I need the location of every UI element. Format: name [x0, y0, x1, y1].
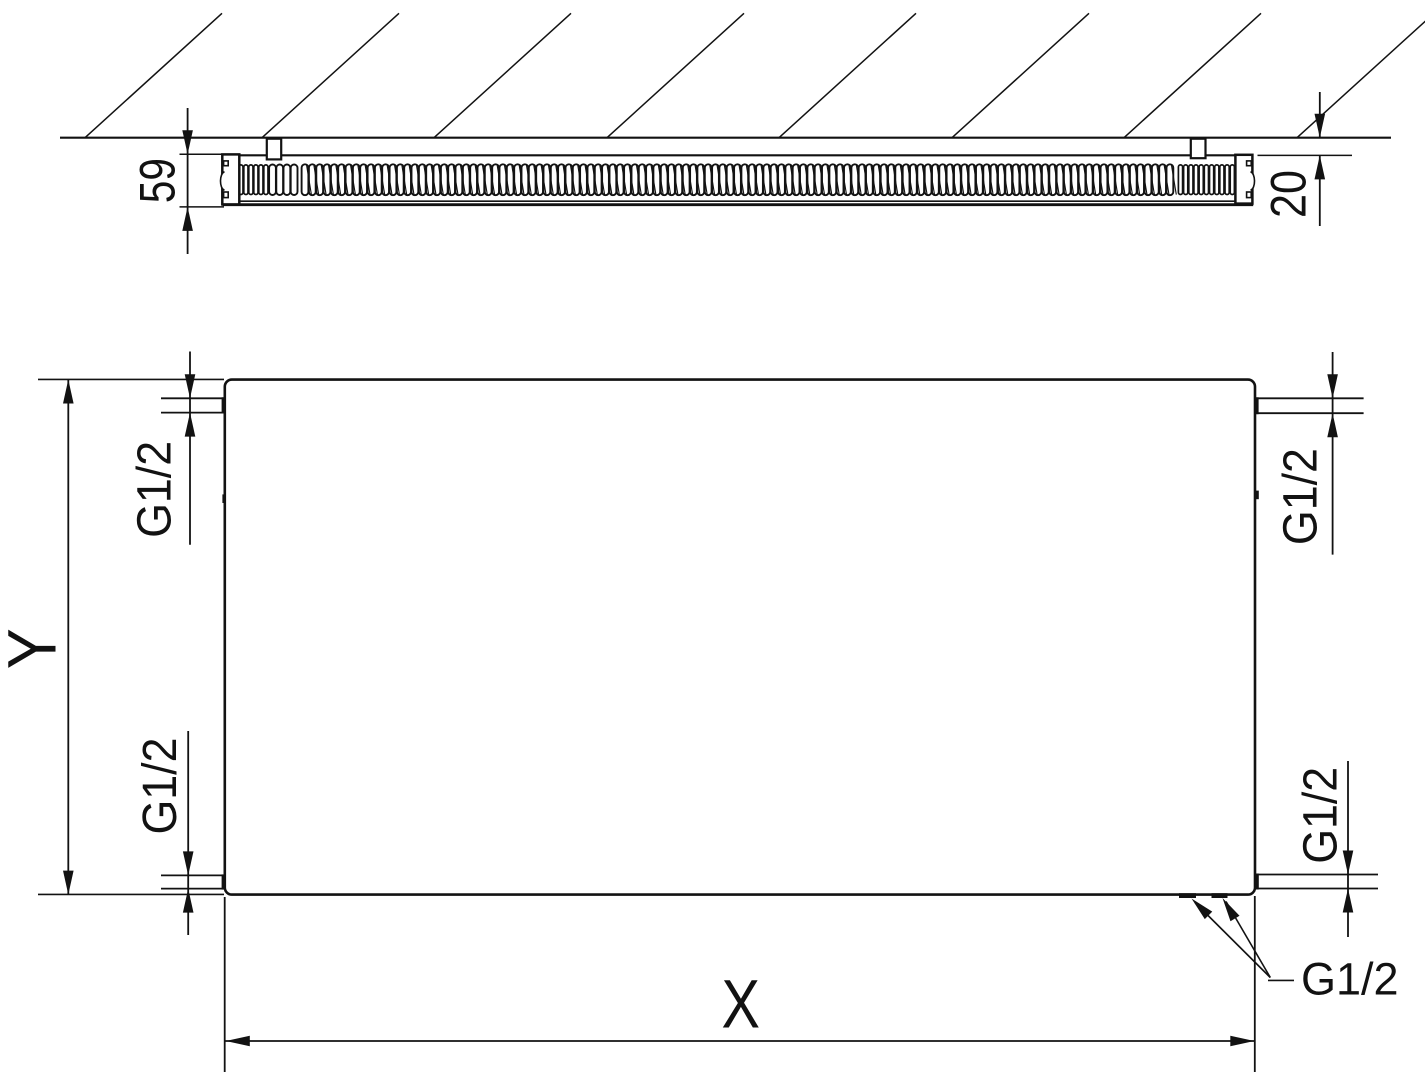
svg-text:X: X	[721, 965, 760, 1042]
svg-text:G1/2: G1/2	[1274, 448, 1328, 545]
svg-text:G1/2: G1/2	[128, 441, 182, 538]
svg-text:G1/2: G1/2	[1301, 953, 1399, 1004]
svg-text:59: 59	[128, 158, 185, 203]
svg-text:G1/2: G1/2	[1294, 767, 1348, 864]
svg-text:G1/2: G1/2	[133, 738, 187, 835]
svg-text:20: 20	[1260, 170, 1317, 218]
svg-text:Y: Y	[0, 628, 70, 669]
